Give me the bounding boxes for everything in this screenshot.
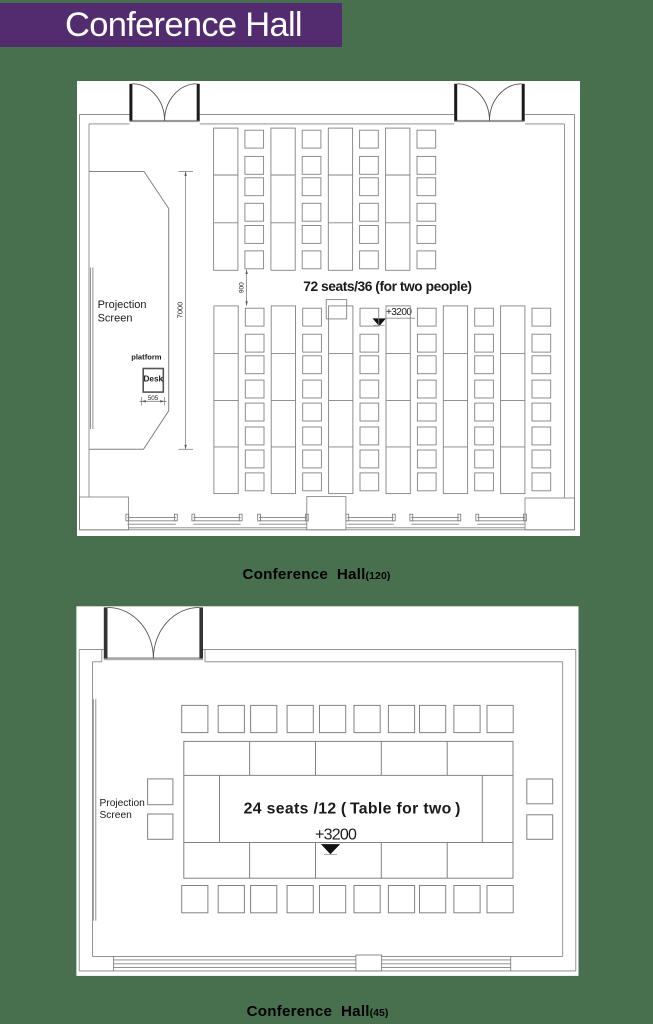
svg-text:Desk: Desk [144,375,164,384]
svg-text:72 seats/36 (for two people): 72 seats/36 (for two people) [303,279,471,294]
svg-text:platform: platform [131,353,162,362]
svg-text:+3200: +3200 [386,307,412,318]
svg-text:Projection: Projection [100,798,145,809]
svg-text:24 seats /12 ( Table for two ): 24 seats /12 ( Table for two ) [244,801,461,818]
svg-text:Screen: Screen [98,313,133,325]
svg-text:7000: 7000 [175,302,184,319]
svg-text:Screen: Screen [100,810,132,821]
svg-text:Projection: Projection [98,299,147,311]
svg-text:505: 505 [148,395,159,402]
svg-text:+3200: +3200 [315,827,357,844]
svg-text:900: 900 [238,282,245,293]
